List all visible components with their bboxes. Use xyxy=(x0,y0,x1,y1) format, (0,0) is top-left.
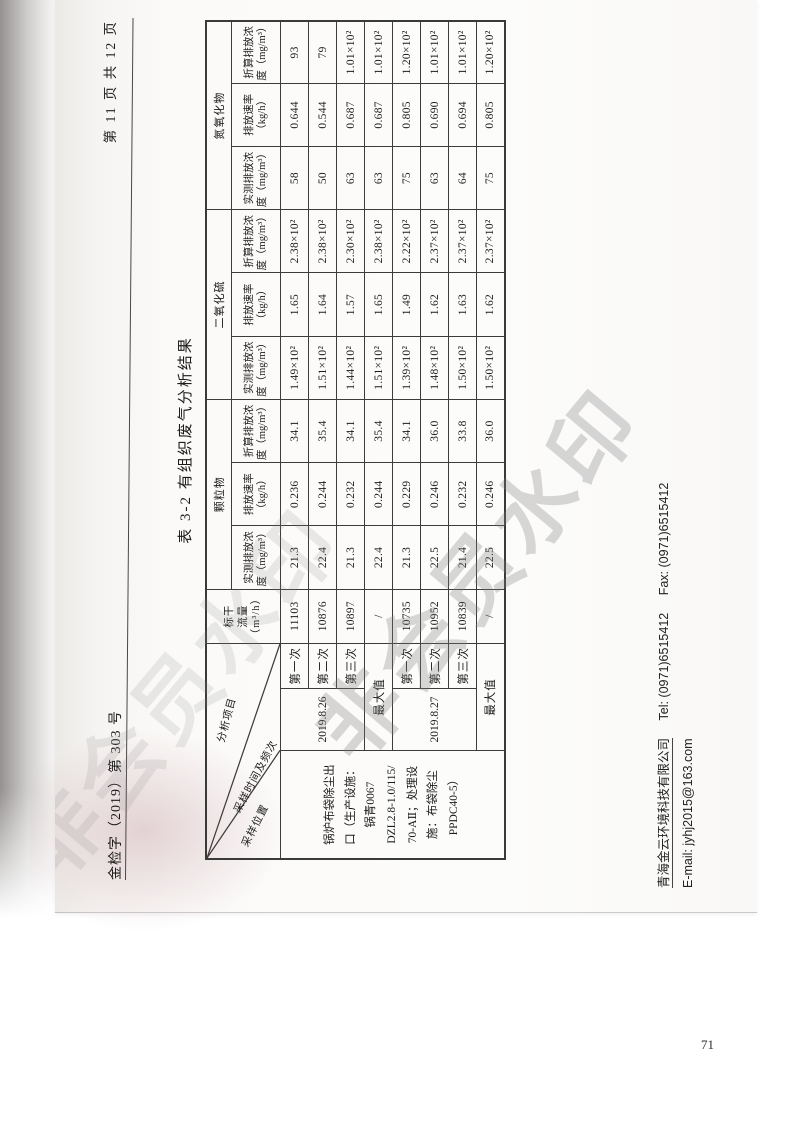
date-cell: 2019.8.27 xyxy=(393,688,477,750)
table-row: 2019.8.27第一次1073521.30.22934.11.39×10²1.… xyxy=(393,21,421,859)
table-row: 最大值/22.50.24636.01.50×10²1.622.37×10²750… xyxy=(477,21,505,859)
value-cell: 1.65 xyxy=(281,273,309,336)
value-cell: 75 xyxy=(393,146,421,209)
value-cell: 2.37×10² xyxy=(421,210,449,273)
value-cell: 1.63 xyxy=(449,273,477,336)
analysis-table: 分析项目 采样时间及频次 采样位置 标干 流量 （m³/h） 颗粒物 二氧化硫 … xyxy=(205,20,506,860)
subheader-measured: 实测排放浓度（mg/m³） xyxy=(232,526,281,589)
company-name: 青海金云环境科技有限公司 xyxy=(657,738,673,888)
value-cell: 1.49×10² xyxy=(281,336,309,399)
flow-value-cell: / xyxy=(365,589,393,643)
value-cell: 1.20×10² xyxy=(393,21,421,83)
value-cell: 1.01×10² xyxy=(421,21,449,83)
value-cell: 1.01×10² xyxy=(337,21,365,83)
table-title: 表 3-2 有组织废气分析结果 xyxy=(174,20,195,860)
value-cell: 0.246 xyxy=(421,463,449,526)
page: 金检字（2019）第 303 号 第 11 页 共 12 页 表 3-2 有组织… xyxy=(0,0,794,1123)
value-cell: 36.0 xyxy=(421,399,449,462)
sequence-cell: 最大值 xyxy=(365,643,393,750)
value-cell: 2.38×10² xyxy=(281,210,309,273)
sequence-cell: 第一次 xyxy=(393,643,421,688)
value-cell: 0.229 xyxy=(393,463,421,526)
date-cell: 2019.8.26 xyxy=(281,688,365,750)
group-header-row: 分析项目 采样时间及频次 采样位置 标干 流量 （m³/h） 颗粒物 二氧化硫 … xyxy=(206,21,232,859)
value-cell: 75 xyxy=(477,146,505,209)
value-cell: 2.38×10² xyxy=(309,210,337,273)
footer-email: E-mail: jyhj2015@163.com xyxy=(681,483,695,888)
value-cell: 1.62 xyxy=(477,273,505,336)
value-cell: 22.5 xyxy=(477,526,505,589)
value-cell: 93 xyxy=(281,21,309,83)
flow-value-cell: 11103 xyxy=(281,589,309,643)
value-cell: 36.0 xyxy=(477,399,505,462)
value-cell: 33.8 xyxy=(449,399,477,462)
value-cell: 0.544 xyxy=(309,83,337,146)
page-indicator: 第 11 页 共 12 页 xyxy=(99,20,119,143)
subheader-converted: 折算排放浓度（mg/m³） xyxy=(232,210,281,273)
value-cell: 1.48×10² xyxy=(421,336,449,399)
value-cell: 21.4 xyxy=(449,526,477,589)
value-cell: 1.65 xyxy=(365,273,393,336)
value-cell: 1.20×10² xyxy=(477,21,505,83)
value-cell: 22.5 xyxy=(421,526,449,589)
value-cell: 1.62 xyxy=(421,273,449,336)
document-number: 金检字（2019）第 303 号 xyxy=(105,710,125,880)
value-cell: 21.3 xyxy=(281,526,309,589)
value-cell: 0.232 xyxy=(449,463,477,526)
value-cell: 2.22×10² xyxy=(393,210,421,273)
corner-header-cell: 分析项目 采样时间及频次 采样位置 xyxy=(206,643,281,859)
subheader-rate: 排放速率（kg/h） xyxy=(232,273,281,336)
value-cell: 63 xyxy=(337,146,365,209)
subheader-measured: 实测排放浓度（mg/m³） xyxy=(232,336,281,399)
subheader-measured: 实测排放浓度（mg/m³） xyxy=(232,146,281,209)
subheader-rate: 排放速率（kg/h） xyxy=(232,463,281,526)
sequence-cell: 第三次 xyxy=(337,643,365,688)
value-cell: 0.690 xyxy=(421,83,449,146)
value-cell: 0.246 xyxy=(477,463,505,526)
subheader-converted: 折算排放浓度（mg/m³） xyxy=(232,399,281,462)
value-cell: 1.39×10² xyxy=(393,336,421,399)
value-cell: 63 xyxy=(421,146,449,209)
value-cell: 0.694 xyxy=(449,83,477,146)
flow-value-cell: / xyxy=(477,589,505,643)
value-cell: 63 xyxy=(365,146,393,209)
value-cell: 1.01×10² xyxy=(365,21,393,83)
table-row: 锅炉布袋除尘出 口（生产设施： 锅青0067 DZL2.8-1.0/115/ 7… xyxy=(281,21,309,859)
flow-value-cell: 10735 xyxy=(393,589,421,643)
value-cell: 1.64 xyxy=(309,273,337,336)
flow-value-cell: 10897 xyxy=(337,589,365,643)
value-cell: 2.37×10² xyxy=(449,210,477,273)
value-cell: 0.805 xyxy=(393,83,421,146)
value-cell: 22.4 xyxy=(309,526,337,589)
value-cell: 34.1 xyxy=(281,399,309,462)
footer-fax: Fax: (0971)6515412 xyxy=(657,483,671,596)
group-pm: 颗粒物 xyxy=(206,399,232,589)
header-rule xyxy=(125,18,134,880)
landscape-content: 金检字（2019）第 303 号 第 11 页 共 12 页 表 3-2 有组织… xyxy=(55,0,755,1123)
sampling-location-cell: 锅炉布袋除尘出 口（生产设施： 锅青0067 DZL2.8-1.0/115/ 7… xyxy=(281,751,505,859)
value-cell: 2.30×10² xyxy=(337,210,365,273)
value-cell: 0.232 xyxy=(337,463,365,526)
sequence-cell: 第三次 xyxy=(449,643,477,688)
value-cell: 0.236 xyxy=(281,463,309,526)
sequence-cell: 第二次 xyxy=(421,643,449,688)
value-cell: 1.44×10² xyxy=(337,336,365,399)
value-cell: 21.3 xyxy=(337,526,365,589)
value-cell: 35.4 xyxy=(309,399,337,462)
value-cell: 1.49 xyxy=(393,273,421,336)
sequence-cell: 第二次 xyxy=(309,643,337,688)
footer: 青海金云环境科技有限公司 Tel: (0971)6515412 Fax: (09… xyxy=(653,483,695,888)
value-cell: 22.4 xyxy=(365,526,393,589)
flow-header-cell: 标干 流量 （m³/h） xyxy=(206,589,281,643)
value-cell: 0.687 xyxy=(337,83,365,146)
value-cell: 35.4 xyxy=(365,399,393,462)
value-cell: 0.244 xyxy=(365,463,393,526)
value-cell: 0.244 xyxy=(309,463,337,526)
value-cell: 0.805 xyxy=(477,83,505,146)
footer-tel: Tel: (0971)6515412 xyxy=(657,613,671,721)
value-cell: 34.1 xyxy=(393,399,421,462)
subheader-converted: 折算排放浓度（mg/m³） xyxy=(232,21,281,83)
table-row: 最大值/22.40.24435.41.51×10²1.652.38×10²630… xyxy=(365,21,393,859)
footer-contact-line: 青海金云环境科技有限公司 Tel: (0971)6515412 Fax: (09… xyxy=(653,483,672,888)
value-cell: 2.38×10² xyxy=(365,210,393,273)
value-cell: 1.51×10² xyxy=(309,336,337,399)
flow-value-cell: 10839 xyxy=(449,589,477,643)
flow-value-cell: 10876 xyxy=(309,589,337,643)
sequence-cell: 最大值 xyxy=(477,643,505,750)
value-cell: 1.57 xyxy=(337,273,365,336)
group-so2: 二氧化硫 xyxy=(206,210,232,400)
value-cell: 1.50×10² xyxy=(449,336,477,399)
value-cell: 50 xyxy=(309,146,337,209)
value-cell: 34.1 xyxy=(337,399,365,462)
value-cell: 21.3 xyxy=(393,526,421,589)
value-cell: 64 xyxy=(449,146,477,209)
value-cell: 2.37×10² xyxy=(477,210,505,273)
value-cell: 0.644 xyxy=(281,83,309,146)
analysis-table-wrapper: 分析项目 采样时间及频次 采样位置 标干 流量 （m³/h） 颗粒物 二氧化硫 … xyxy=(205,20,506,860)
value-cell: 1.01×10² xyxy=(449,21,477,83)
outer-page-number: 71 xyxy=(701,1037,714,1053)
sequence-cell: 第一次 xyxy=(281,643,309,688)
value-cell: 1.51×10² xyxy=(365,336,393,399)
subheader-rate: 排放速率（kg/h） xyxy=(232,83,281,146)
flow-value-cell: 10952 xyxy=(421,589,449,643)
value-cell: 58 xyxy=(281,146,309,209)
group-nox: 氮氧化物 xyxy=(206,21,232,210)
value-cell: 79 xyxy=(309,21,337,83)
value-cell: 0.687 xyxy=(365,83,393,146)
value-cell: 1.50×10² xyxy=(477,336,505,399)
